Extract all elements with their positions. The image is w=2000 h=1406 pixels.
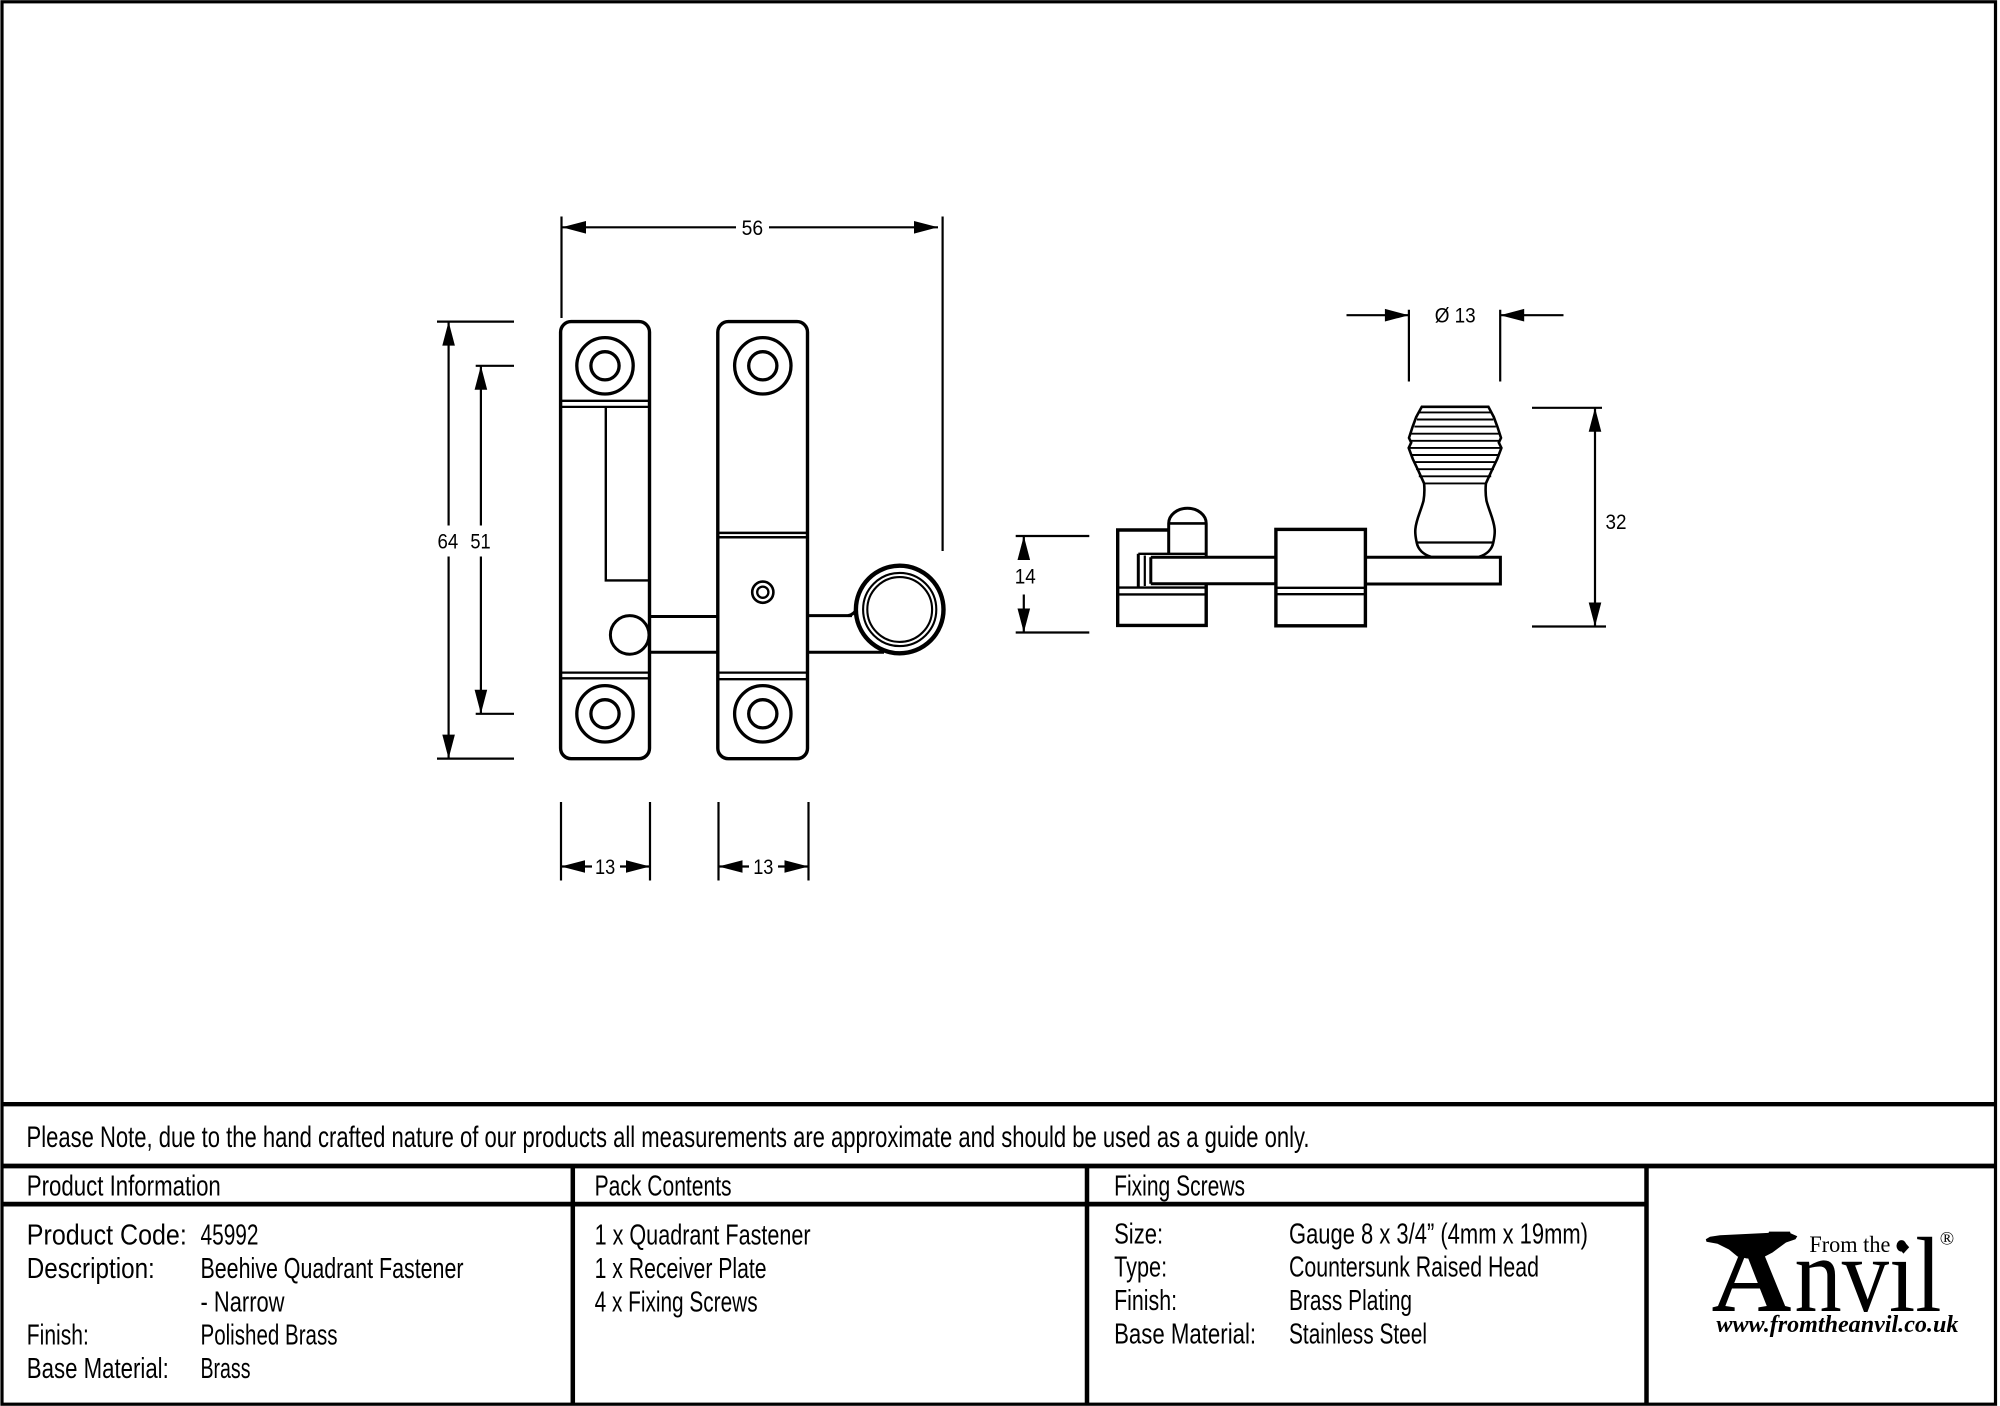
svg-text:13: 13 xyxy=(595,856,615,879)
svg-text:Brass Plating: Brass Plating xyxy=(1289,1285,1412,1317)
svg-text:Gauge 8 x 3/4” (4mm x 19mm): Gauge 8 x 3/4” (4mm x 19mm) xyxy=(1289,1218,1588,1250)
svg-text:45992: 45992 xyxy=(201,1220,259,1252)
svg-text:Countersunk Raised Head: Countersunk Raised Head xyxy=(1289,1252,1539,1284)
svg-text:Ø 13: Ø 13 xyxy=(1435,305,1476,328)
svg-text:Polished Brass: Polished Brass xyxy=(201,1320,338,1352)
svg-text:32: 32 xyxy=(1606,511,1627,534)
svg-text:4 x Fixing Screws: 4 x Fixing Screws xyxy=(595,1286,758,1318)
svg-text:56: 56 xyxy=(742,217,764,240)
svg-text:Brass: Brass xyxy=(201,1353,251,1385)
svg-text:Description:: Description: xyxy=(27,1253,155,1285)
svg-text:Fixing Screws: Fixing Screws xyxy=(1114,1171,1245,1203)
svg-text:Finish:: Finish: xyxy=(27,1320,89,1352)
svg-text:14: 14 xyxy=(1015,566,1036,589)
svg-text:- Narrow: - Narrow xyxy=(201,1286,285,1318)
svg-text:1 x Quadrant Fastener: 1 x Quadrant Fastener xyxy=(595,1220,811,1252)
svg-text:Product Code:: Product Code: xyxy=(27,1220,187,1252)
svg-text:Finish:: Finish: xyxy=(1114,1285,1177,1317)
svg-text:Pack Contents: Pack Contents xyxy=(595,1171,732,1203)
svg-text:www.fromtheanvil.co.uk: www.fromtheanvil.co.uk xyxy=(1716,1312,1958,1338)
svg-text:Base Material:: Base Material: xyxy=(27,1353,169,1385)
svg-text:51: 51 xyxy=(470,530,490,553)
svg-text:Please Note, due to the hand c: Please Note, due to the hand crafted nat… xyxy=(27,1121,1310,1154)
svg-text:Size:: Size: xyxy=(1114,1218,1163,1250)
svg-text:1 x Receiver Plate: 1 x Receiver Plate xyxy=(595,1253,767,1285)
svg-text:Type:: Type: xyxy=(1114,1252,1167,1284)
svg-text:Beehive Quadrant Fastener: Beehive Quadrant Fastener xyxy=(201,1253,464,1285)
svg-text:64: 64 xyxy=(438,530,459,553)
svg-text:Stainless Steel: Stainless Steel xyxy=(1289,1318,1427,1350)
svg-text:13: 13 xyxy=(753,856,773,879)
svg-text:Base Material:: Base Material: xyxy=(1114,1318,1256,1350)
svg-text:Product Information: Product Information xyxy=(27,1171,221,1203)
svg-text:®: ® xyxy=(1940,1229,1954,1250)
